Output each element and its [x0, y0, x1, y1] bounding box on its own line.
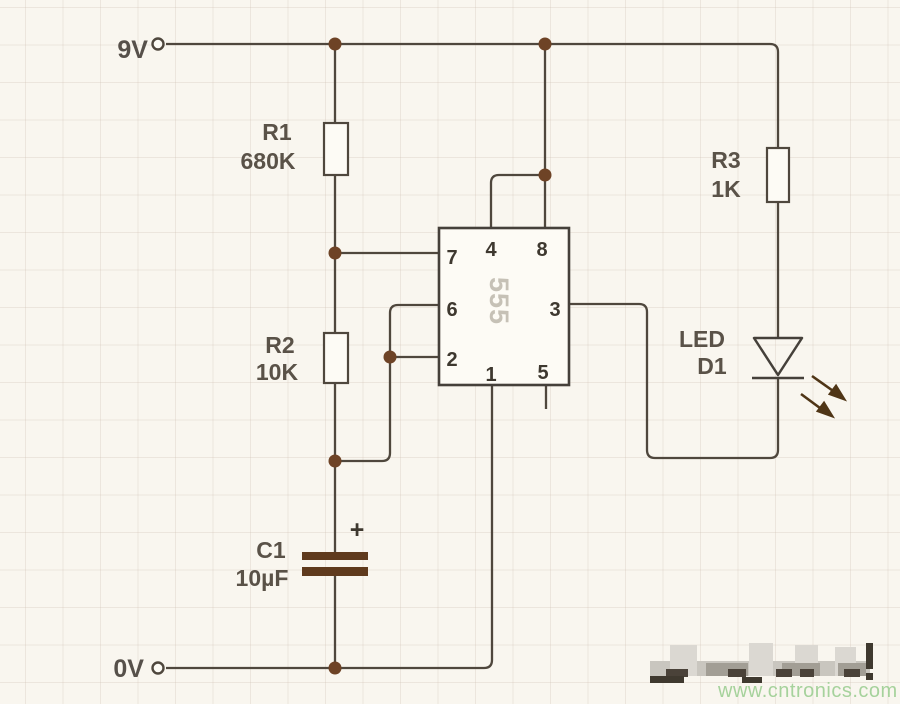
ic-555-silkscreen: 555	[484, 277, 514, 325]
wire-pin4	[491, 175, 545, 228]
pin-3-label: 3	[549, 299, 560, 321]
wire-pin6	[390, 305, 439, 357]
c1-bottom-plate	[302, 567, 368, 576]
ground-rail-label: 0V	[113, 655, 144, 683]
wire-pin3-led	[569, 304, 778, 458]
r2-value-label: 10K	[256, 359, 299, 385]
c1-ref-label: C1	[256, 537, 286, 563]
pin-8-label: 8	[536, 239, 547, 261]
terminal-0v	[153, 663, 164, 674]
schematic-svg: 555 7 4 8 6 3 2 1 5 9V 0V R1 680K	[0, 0, 900, 704]
led-ref-label: D1	[697, 353, 727, 379]
c1-value-label: 10µF	[236, 565, 289, 591]
pin-7-label: 7	[446, 247, 457, 269]
junction-dot	[329, 662, 342, 675]
led-light-arrows-icon	[801, 376, 844, 416]
supply-rail-label: 9V	[117, 36, 148, 64]
led-symbol	[752, 338, 844, 416]
junction-dot	[329, 455, 342, 468]
resistor-r3-symbol	[767, 148, 789, 202]
censored-watermark-block	[650, 643, 873, 683]
wire-pin1-ground-rail	[166, 385, 492, 668]
pin-6-label: 6	[446, 299, 457, 321]
wire-top-rail	[166, 44, 778, 148]
resistor-r1-symbol	[324, 123, 348, 175]
junction-dot	[384, 351, 397, 364]
junction-dot	[329, 247, 342, 260]
pin-2-label: 2	[446, 349, 457, 371]
r3-value-label: 1K	[711, 176, 741, 202]
circuit-diagram: 555 7 4 8 6 3 2 1 5 9V 0V R1 680K	[0, 0, 900, 704]
r1-value-label: 680K	[241, 148, 296, 174]
led-type-label: LED	[679, 326, 725, 352]
r3-ref-label: R3	[711, 147, 740, 173]
resistor-r2-symbol	[324, 333, 348, 383]
r1-ref-label: R1	[262, 119, 292, 145]
led-arrow-2-head	[818, 403, 832, 416]
pin-5-label: 5	[537, 362, 548, 384]
led-triangle	[754, 338, 802, 375]
r2-ref-label: R2	[265, 332, 294, 358]
junction-dot	[539, 38, 552, 51]
c1-polarity-mark: +	[350, 516, 365, 544]
terminal-9v	[153, 39, 164, 50]
junction-dot	[539, 169, 552, 182]
pin-1-label: 1	[485, 364, 496, 386]
capacitor-c1-symbol	[302, 552, 368, 576]
pin-4-label: 4	[485, 239, 497, 261]
led-arrow-1-head	[830, 386, 844, 399]
c1-top-plate	[302, 552, 368, 560]
junction-dot	[329, 38, 342, 51]
watermark-link: www.cntronics.com	[717, 680, 898, 702]
